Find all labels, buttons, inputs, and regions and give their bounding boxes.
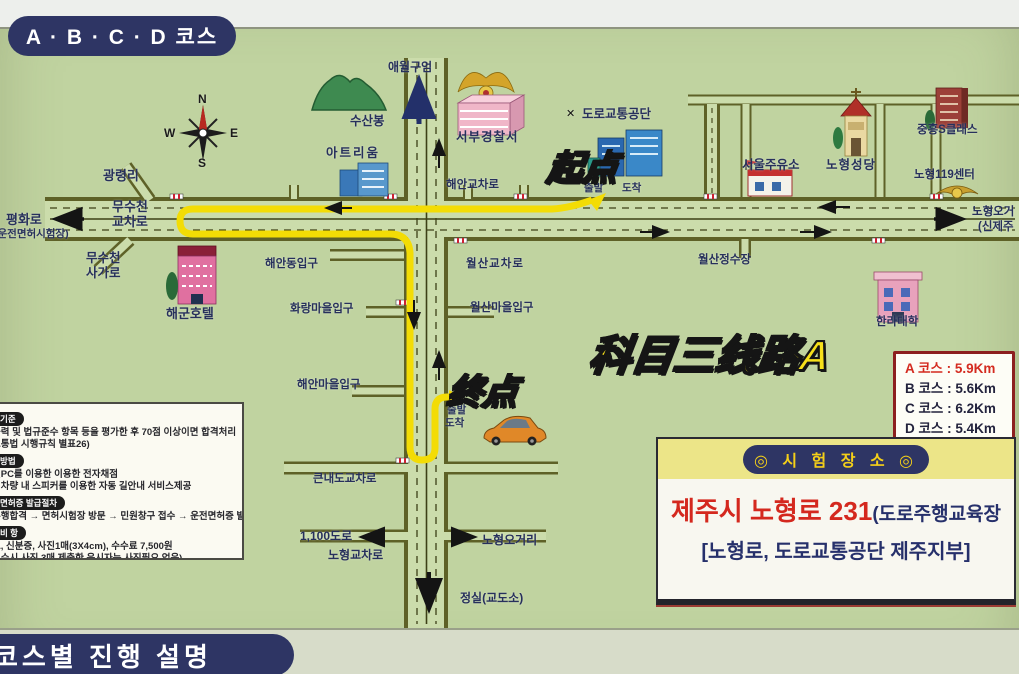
course-description-pill: 코스별 진행 설명 — [0, 634, 294, 674]
compass-rose — [179, 105, 227, 161]
test-car-icon — [484, 416, 546, 445]
atrium-building — [340, 163, 388, 196]
label-119-center: 노형119센터 — [914, 169, 975, 183]
exam-address-sub: [노형로, 도로교통공단 제주지부] — [658, 535, 1014, 564]
info-line: 표, 신분증, 사진1매(3X4cm), 수수료 7,500원 — [0, 541, 238, 553]
label-haean-dong: 해안동입구 — [265, 258, 318, 272]
exam-title-band: ◎ 시 험 장 소 ◎ — [658, 439, 1014, 479]
exam-address-paren: (도로주행교육장 — [872, 504, 1001, 525]
tree-icon — [833, 127, 843, 149]
legend-row-d: D 코스 : 5.4Km — [905, 419, 1012, 439]
label-jeongsil: 정실(교도소) — [460, 591, 523, 605]
route-start-annotation: 起点 — [544, 140, 621, 191]
label-haean-crossing: 해안교차로 — [446, 179, 499, 193]
label-keunnaedo: 큰내도교차로 — [313, 473, 376, 487]
exam-address-main: 제주시 노형로 231 — [671, 496, 872, 526]
info-tag-issuance: 면허증 발급절차 — [0, 496, 65, 510]
label-cathedral: 노형성당 — [826, 158, 876, 173]
tree-icon — [166, 272, 178, 300]
label-hotel: 해군호텔 — [166, 306, 214, 321]
label-aewol-gueom: 애월구엄 — [388, 60, 432, 74]
label-nohyeong-crossing: 노형교차로 — [328, 548, 383, 562]
label-atrium: 아트리움 — [326, 146, 380, 161]
label-police: 서부경찰서 — [456, 130, 519, 145]
label-wolsan-water: 월산정수장 — [698, 254, 751, 268]
label-license-site: (운전면허시험장) — [0, 228, 69, 240]
info-tag-requirements: 비 항 — [0, 526, 26, 540]
traffic-authority-logo-icon: ✕ — [566, 108, 575, 121]
legend-row-a: A 코스 : 5.9Km — [905, 359, 1012, 379]
label-shinjeju-line1: 노형오거 — [972, 206, 1014, 220]
label-hwarang-village: 화랑마을입구 — [290, 303, 353, 317]
label-jungheung: 중흥S클래스 — [917, 124, 978, 138]
hotel-building — [166, 246, 216, 304]
label-gwangnyeongri: 광령리 — [103, 168, 139, 183]
poster-photo: A · B · C · D 코스 N W E S 광령리 평화로 (운전면허시험… — [0, 0, 1019, 674]
label-haean-village: 해안마을입구 — [297, 379, 360, 393]
exam-info-box: 기준 능력 및 법규준수 항목 등을 평가한 후 70점 이상이면 합격처리 교… — [0, 402, 244, 560]
route-end-annotation: 终点 — [444, 364, 521, 415]
exam-address-line: 제주시 노형로 231(도로주행교육장 — [658, 491, 1014, 528]
label-musucheon-sagaro: 무수천 사가로 — [86, 251, 121, 281]
label-gas-station: 서울주유소 — [742, 158, 800, 173]
label-shinjeju-line2: (신제주 — [978, 221, 1014, 235]
label-nohyeong-ogeori: 노형오거리 — [482, 533, 537, 547]
label-wolsan-crossing: 월산교차로 — [466, 258, 524, 272]
compass-w-label: W — [164, 126, 175, 140]
label-halla-univ: 한라대학 — [876, 316, 918, 330]
info-line: 릿PC를 이용한 이용한 전자채점 — [0, 469, 238, 481]
info-tag-method: 방법 — [0, 454, 24, 468]
info-line: 접수시 사진 3매 제출한 응시자는 사진필요 없음) — [0, 553, 238, 560]
label-arrive-mid: 도착 — [445, 417, 464, 429]
mountain-icon — [312, 75, 386, 110]
info-line: 능력 및 법규준수 항목 등을 평가한 후 70점 이상이면 합격처리 — [0, 427, 238, 439]
info-line: 험차량 내 스피커를 이용한 자동 길안내 서비스제공 — [0, 481, 238, 493]
legend-row-c: C 코스 : 6.2Km — [905, 399, 1012, 419]
label-musucheon-crossing: 무수천 교차로 — [112, 199, 148, 230]
info-tag-criteria: 기준 — [0, 412, 24, 426]
course-list-pill: A · B · C · D 코스 — [8, 16, 236, 56]
exam-title-pill: ◎ 시 험 장 소 ◎ — [743, 445, 929, 474]
route-title-annotation: 科目三线路A — [586, 322, 835, 383]
police-station-building — [458, 72, 524, 135]
label-arrive-top: 도착 — [622, 182, 641, 194]
label-traffic-authority: 도로교통공단 — [582, 107, 651, 122]
info-line: 주행합격 → 면허시험장 방문 → 민원창구 접수 → 운전면허증 발급 — [0, 511, 238, 523]
compass-n-label: N — [198, 92, 207, 106]
info-line: 교통법 시행규칙 별표26) — [0, 439, 238, 451]
course-distance-legend: A 코스 : 5.9Km B 코스 : 5.6Km C 코스 : 6.2Km D… — [893, 351, 1015, 445]
compass-s-label: S — [198, 156, 206, 170]
label-1100-road: 1,100도로 — [300, 529, 352, 543]
label-wolsan-village: 월산마을입구 — [470, 302, 533, 316]
label-pyeonghwaro: 평화로 — [6, 212, 42, 227]
university-building — [874, 272, 922, 322]
legend-row-b: B 코스 : 5.6Km — [905, 379, 1012, 399]
label-susanbong: 수산봉 — [350, 114, 385, 129]
exam-location-box: ◎ 시 험 장 소 ◎ 제주시 노형로 231(도로주행교육장 [노형로, 도로… — [656, 437, 1016, 605]
compass-e-label: E — [230, 126, 238, 140]
